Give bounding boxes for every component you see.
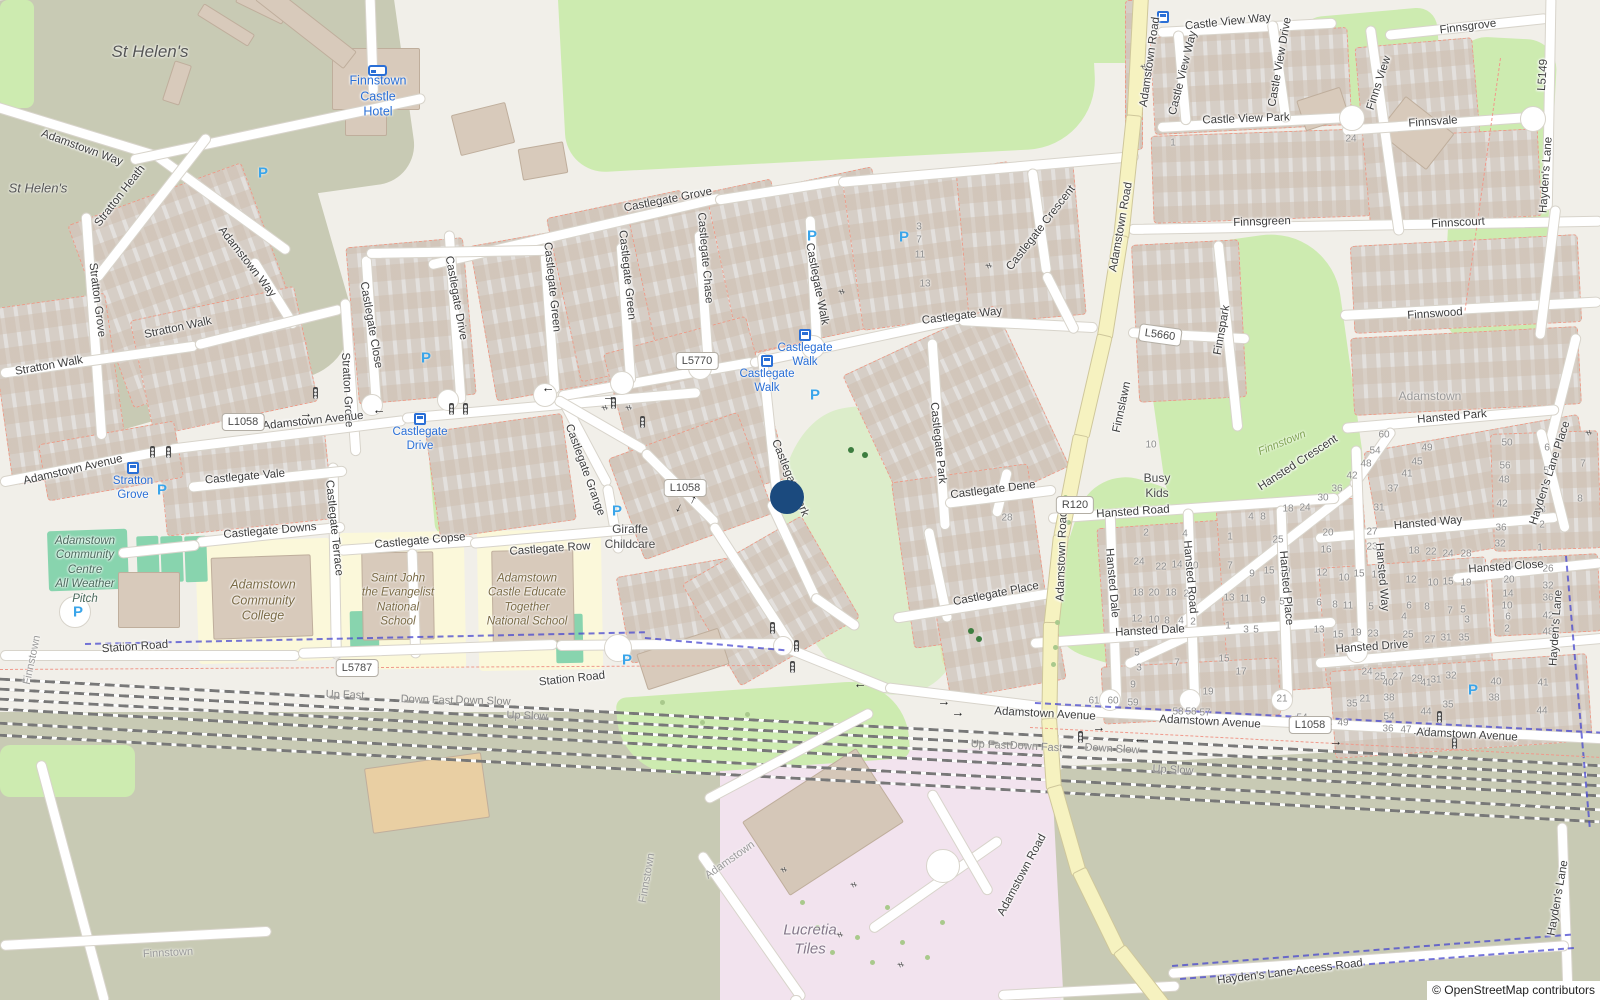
house-number: 60 [1378, 430, 1389, 441]
house-number: 12 [1131, 614, 1142, 625]
house-number: 8 [1577, 494, 1583, 505]
map-canvas[interactable]: © OpenStreetMap contributors Adamstown W… [0, 0, 1600, 1000]
oneway-arrow-icon: → [938, 694, 951, 709]
house-number: 54 [1369, 446, 1380, 457]
tree-icon [848, 447, 854, 453]
house-number: 3 [916, 222, 922, 233]
road-segment [790, 995, 802, 1000]
house-number: 18 [1165, 588, 1176, 599]
traffic-signal-icon [1437, 711, 1442, 723]
house-number: 8 [1424, 602, 1430, 613]
house-number: 24 [1345, 134, 1356, 145]
house-number: 4 [1182, 529, 1188, 540]
house-number: 21 [1359, 694, 1370, 705]
house-number: 9 [1130, 680, 1136, 691]
house-number: 7 [916, 235, 922, 246]
building [518, 141, 569, 181]
oneway-arrow-icon: → [373, 407, 386, 422]
house-number: 32 [1494, 539, 1505, 550]
house-number: 2 [1190, 617, 1196, 628]
house-number: 25 [1272, 535, 1283, 546]
oneway-arrow-icon: → [1134, 736, 1147, 751]
tree-icon [925, 955, 930, 960]
oneway-arrow-icon: → [542, 385, 555, 400]
house-number: 18 [1282, 504, 1293, 515]
building [118, 572, 180, 628]
house-number: 1 [1537, 543, 1543, 554]
house-number: 54 [1383, 712, 1394, 723]
bus-stop-label: Stratton Grove [113, 475, 153, 503]
house-number: 1 [1225, 621, 1231, 632]
house-number: 48 [1360, 459, 1371, 470]
house-number: 36 [1495, 523, 1506, 534]
house-number: 19 [1202, 687, 1213, 698]
house-number: 44 [1420, 707, 1431, 718]
house-number: 6 [1544, 443, 1550, 454]
route-shield: L5770 [676, 352, 719, 370]
house-number: 49 [1337, 718, 1348, 729]
oneway-arrow-icon: → [952, 705, 965, 720]
adamstown-community-college-label: Adamstown Community College [230, 578, 295, 625]
house-number: 19 [1350, 628, 1361, 639]
house-number: 24 [1299, 503, 1310, 514]
route-shield: L1058 [1289, 716, 1332, 734]
parking-icon: P [899, 229, 909, 246]
parking-icon: P [810, 387, 820, 404]
landuse-zone [0, 0, 34, 108]
route-shield: L1058 [222, 413, 265, 431]
finnstown-castle-hotel-label: Finnstown Castle Hotel [350, 74, 407, 121]
house-number: 15 [1218, 654, 1229, 665]
house-number: 26 [1542, 564, 1553, 575]
busy-kids-label: Busy Kids [1144, 471, 1171, 501]
house-number: 30 [1317, 493, 1328, 504]
oneway-arrow-icon: → [1330, 734, 1343, 749]
bus-stop-icon [761, 355, 773, 367]
house-number: 28 [1001, 513, 1012, 524]
house-number: 31 [1440, 633, 1451, 644]
house-number: 8 [1260, 512, 1266, 523]
house-number: 4 [1401, 612, 1407, 623]
house-number: 7 [1580, 459, 1586, 470]
house-number: 22 [1425, 547, 1436, 558]
traffic-signal-icon [463, 403, 468, 415]
tree-icon [940, 920, 945, 925]
house-number: 10 [1145, 440, 1156, 451]
house-number: 19 [1460, 578, 1471, 589]
railway-track-label: Down Fast [401, 693, 454, 707]
tree-icon [800, 900, 805, 905]
street-label: Finnsgrove [1439, 18, 1497, 37]
tree-icon [870, 960, 875, 965]
street-label: L5149 [1536, 59, 1550, 92]
house-number: 24 [1442, 549, 1453, 560]
openstreetmap-attribution[interactable]: © OpenStreetMap contributors [1427, 981, 1600, 1000]
house-number: 3 [1243, 625, 1249, 636]
house-number: 2 [1504, 624, 1510, 635]
house-number: 13 [1223, 593, 1234, 604]
railway-track-label: Up Fast [326, 688, 365, 701]
route-shield: L1058 [664, 479, 707, 497]
house-number: 1 [1170, 138, 1176, 149]
house-number: 37 [1387, 484, 1398, 495]
house-number: 35 [1346, 699, 1357, 710]
traffic-signal-icon [794, 640, 799, 652]
house-number: 35 [1458, 633, 1469, 644]
house-number: 7 [1447, 606, 1453, 617]
house-number: 14 [1171, 560, 1182, 571]
saint-john-school-label: Saint John the Evangelist National Schoo… [362, 571, 434, 629]
bus-stop-label: Castlegate Walk [778, 342, 833, 370]
route-shield: L5787 [336, 659, 379, 677]
railway-track-label: Down Slow [455, 694, 510, 708]
house-number: 10 [1427, 578, 1438, 589]
railway-track-label: Up Slow [506, 709, 547, 722]
house-number: 12 [1316, 568, 1327, 579]
house-number: 32 [1445, 671, 1456, 682]
house-number: 21 [1276, 694, 1287, 705]
house-number: 13 [919, 279, 930, 290]
tree-icon [660, 700, 665, 705]
tree-icon [700, 720, 705, 725]
house-number: 10 [1338, 573, 1349, 584]
house-number: 35 [1442, 700, 1453, 711]
house-number: 5 [1253, 625, 1259, 636]
parking-icon: P [73, 604, 83, 621]
parking-icon: P [421, 350, 431, 367]
parking-icon: P [622, 652, 632, 669]
tree-icon [1053, 645, 1058, 650]
place-label: St Helen's [9, 181, 68, 196]
house-number: 38 [1383, 693, 1394, 704]
adamstown-community-centre-label: Adamstown Community Centre All Weather P… [55, 534, 115, 606]
parking-icon: P [1468, 682, 1478, 699]
house-number: 15 [1263, 566, 1274, 577]
traffic-signal-icon [449, 403, 454, 415]
building [451, 102, 515, 156]
house-number: 49 [1421, 443, 1432, 454]
house-number: 47 [1400, 725, 1411, 736]
place-label: St Helen's [112, 42, 189, 62]
traffic-signal-icon [640, 416, 645, 428]
house-number: 27 [1392, 672, 1403, 683]
housing-block [1151, 128, 1372, 224]
house-number: 27 [1366, 527, 1377, 538]
house-number: 40 [1382, 678, 1393, 689]
railway-track-label: Up Slow [1152, 763, 1194, 777]
house-number: 1 [1227, 532, 1233, 543]
house-number: 61 [1088, 696, 1099, 707]
tree-icon [976, 636, 982, 642]
giraffe-childcare-label: Giraffe Childcare [605, 522, 656, 552]
cul-de-sac [437, 389, 459, 411]
house-number: 31 [1430, 675, 1441, 686]
house-number: 59 [1127, 698, 1138, 709]
cul-de-sac [773, 636, 793, 656]
house-number: 48 [1498, 475, 1509, 486]
house-number: 5 [1368, 602, 1374, 613]
house-number: 15 [1332, 630, 1343, 641]
house-number: 11 [1343, 601, 1353, 612]
house-number: 11 [915, 250, 925, 261]
house-number: 44 [1536, 706, 1547, 717]
house-number: 41 [1401, 469, 1412, 480]
house-number: 18 [1132, 588, 1143, 599]
house-number: 24 [1361, 667, 1372, 678]
lucretia-tiles-label: Lucretia Tiles [783, 921, 836, 959]
tree-icon [885, 905, 890, 910]
tree-icon [745, 712, 750, 717]
traffic-signal-icon [1078, 731, 1083, 743]
house-number: 60 [1107, 696, 1118, 707]
house-number: 3 [1136, 663, 1142, 674]
housing-block [425, 413, 577, 539]
house-number: 28 [1460, 549, 1471, 560]
parking-icon: P [612, 503, 622, 520]
traffic-signal-icon [166, 446, 171, 458]
house-number: 11 [1240, 594, 1250, 605]
house-number: 23 [1367, 629, 1378, 640]
cul-de-sac [1520, 106, 1546, 132]
bus-stop-label: Castlegate Drive [393, 426, 448, 454]
house-number: 13 [1313, 625, 1324, 636]
house-number: 20 [1322, 528, 1333, 539]
landuse-zone [558, 0, 1099, 174]
traffic-signal-icon [770, 622, 775, 634]
house-number: 16 [1320, 545, 1331, 556]
house-number: 2 [1143, 528, 1149, 539]
house-number: 8 [1332, 600, 1338, 611]
tree-icon [1055, 620, 1060, 625]
oneway-arrow-icon: → [854, 681, 867, 696]
route-shield: R120 [1056, 496, 1094, 514]
house-number: 7 [1227, 561, 1233, 572]
house-number: 9 [1249, 569, 1255, 580]
cul-de-sac [1339, 105, 1365, 131]
house-number: 4 [1248, 512, 1254, 523]
house-number: 18 [1408, 546, 1419, 557]
house-number: 38 [1488, 693, 1499, 704]
traffic-signal-icon [150, 446, 155, 458]
educate-together-school-label: Adamstown Castle Educate Together Nation… [487, 571, 568, 629]
house-number: 45 [1411, 457, 1422, 468]
house-number: 6 [1316, 598, 1322, 609]
house-number: 15 [1442, 577, 1453, 588]
housing-block [955, 157, 1086, 325]
house-number: 22 [1155, 562, 1166, 573]
house-number: 3 [1464, 615, 1470, 626]
house-number: 36 [1331, 484, 1342, 495]
house-number: 42 [1346, 471, 1357, 482]
house-number: 9 [1260, 596, 1266, 607]
house-number: 41 [1420, 678, 1431, 689]
house-number: 27 [1424, 635, 1435, 646]
hotel-bed-icon [368, 65, 387, 76]
street-label: Finnslawn [1111, 380, 1134, 433]
bus-stop-icon [799, 329, 811, 341]
house-number: 24 [1133, 557, 1144, 568]
street-label: Finnsgreen [1233, 215, 1291, 229]
housing-block [1350, 326, 1582, 416]
oneway-arrow-icon: → [603, 389, 616, 404]
tree-icon [855, 935, 860, 940]
place-label: Adamstown [1399, 389, 1462, 403]
tree-icon [862, 452, 868, 458]
bus-stop-icon [414, 413, 426, 425]
house-number: 6 [1505, 612, 1511, 623]
house-number: 31 [1373, 503, 1384, 514]
house-number: 7 [1174, 658, 1180, 669]
house-number: 14 [1502, 589, 1513, 600]
house-number: 50 [1501, 438, 1512, 449]
traffic-signal-icon [313, 387, 318, 399]
house-number: 56 [1499, 461, 1510, 472]
house-number: 10 [1501, 601, 1512, 612]
house-number: 6 [1406, 601, 1412, 612]
tree-icon [1051, 662, 1056, 667]
house-number: 5 [1134, 648, 1140, 659]
house-number: 41 [1537, 678, 1548, 689]
railway-track-label: Up Fast [970, 738, 1009, 752]
house-number: 17 [1235, 667, 1246, 678]
tree-icon [968, 628, 974, 634]
traffic-signal-icon [790, 661, 795, 673]
cul-de-sac [926, 849, 960, 883]
house-number: 42 [1496, 499, 1507, 510]
location-marker[interactable] [770, 480, 804, 514]
parking-icon: P [157, 482, 167, 499]
house-number: 20 [1148, 588, 1159, 599]
parking-icon: P [258, 165, 268, 182]
adamstown-road-segment [1074, 333, 1113, 439]
bus-stop-label: Castlegate Walk [740, 368, 795, 396]
house-number: 36 [1382, 724, 1393, 735]
house-number: 15 [1353, 569, 1364, 580]
house-number: 40 [1490, 677, 1501, 688]
bus-stop-icon [127, 462, 139, 474]
street-label: Station Road [538, 670, 605, 689]
house-number: 20 [1503, 575, 1514, 586]
house-number: 12 [1405, 575, 1416, 586]
tree-icon [900, 940, 905, 945]
